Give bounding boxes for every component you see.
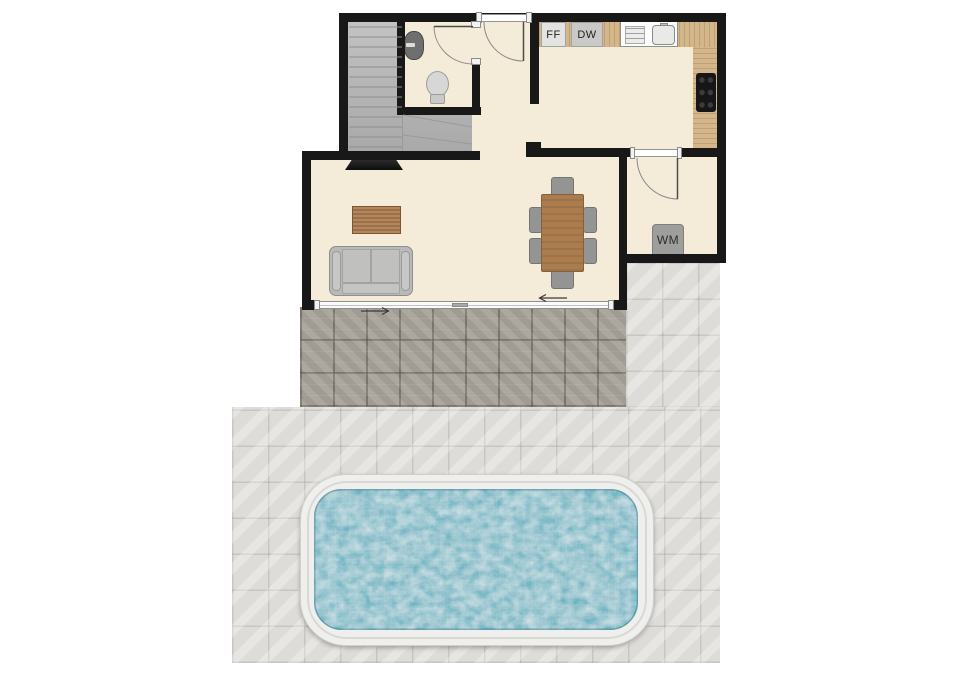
sofa-back — [342, 283, 400, 294]
wall-bathroom-right-lower — [472, 60, 480, 115]
wall-right — [717, 13, 726, 263]
bathroom-door-jamb — [471, 58, 481, 65]
kitchen-faucet — [660, 23, 668, 26]
toilet-tank — [430, 94, 445, 104]
sofa-seat — [371, 249, 400, 283]
patio-dark-tiles — [300, 307, 626, 407]
pool-coping — [307, 481, 647, 639]
floor-plan: FF DW WM — [0, 0, 960, 679]
dining-table — [541, 194, 584, 272]
dining-chair-bottom — [551, 269, 574, 289]
sliding-door-jamb — [608, 300, 614, 310]
sofa — [329, 246, 413, 296]
kitchen-drawers — [625, 26, 645, 44]
dining-chair-right-1 — [583, 207, 597, 233]
bathroom-sink — [404, 31, 424, 60]
sofa-seat — [342, 249, 371, 283]
sofa-armrest-right — [401, 251, 410, 291]
kitchen-sink-basin — [652, 25, 675, 45]
wall-bathroom-bottom — [397, 107, 481, 115]
dining-chair-right-2 — [583, 238, 597, 264]
coffee-table — [352, 206, 401, 234]
cooktop — [696, 73, 716, 112]
utility-door-jamb — [677, 147, 682, 159]
wall-left-upper — [339, 13, 348, 160]
entrance-door-frame — [478, 14, 530, 22]
utility-door-jamb — [630, 147, 635, 159]
bathroom-faucet — [406, 43, 415, 47]
bathroom-door-jamb — [471, 21, 481, 28]
sofa-armrest-left — [332, 251, 341, 291]
bathroom-door-opening — [471, 26, 481, 62]
wall-bathroom-left — [397, 13, 405, 115]
washing-machine: WM — [652, 224, 684, 256]
dishwasher-label: DW — [577, 29, 596, 41]
entrance-door-jamb — [526, 12, 532, 23]
patio-light-tiles-right — [626, 262, 720, 408]
fridge-freezer-label: FF — [546, 29, 560, 41]
washing-machine-label: WM — [657, 233, 679, 247]
sliding-door-jamb — [314, 300, 320, 310]
sliding-door-handle — [452, 303, 468, 307]
fridge-freezer: FF — [541, 22, 566, 47]
wall-hall-kitchen — [530, 13, 539, 104]
wall-living-left — [302, 151, 311, 310]
wall-dining-right — [619, 148, 627, 310]
utility-door-frame — [633, 149, 679, 157]
dishwasher: DW — [571, 22, 603, 47]
kitchen-sink-unit — [620, 21, 678, 47]
pool-deck — [300, 474, 654, 646]
wall-stairs-bottom — [302, 151, 480, 160]
wall-kitchen-bottom — [526, 148, 633, 157]
wall-utility-bottom — [619, 254, 726, 263]
